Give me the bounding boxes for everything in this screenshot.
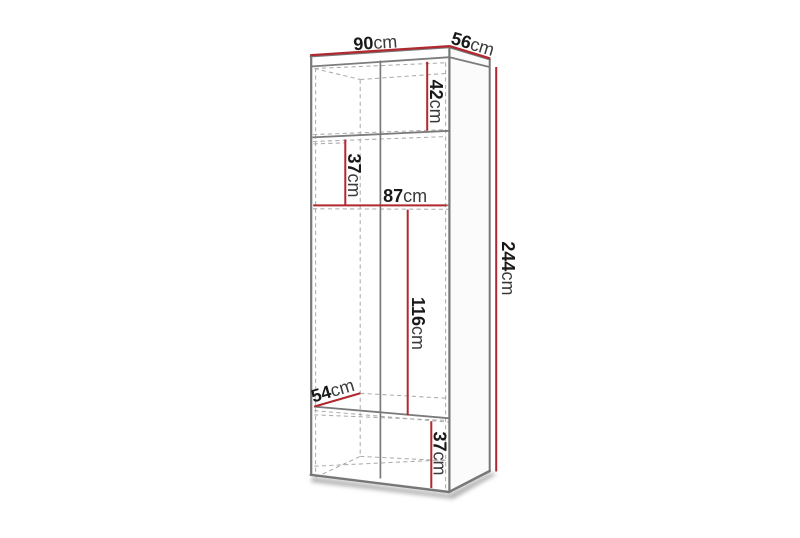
svg-text:37cm: 37cm — [429, 432, 449, 476]
svg-text:116cm: 116cm — [408, 297, 428, 350]
svg-text:90cm: 90cm — [353, 31, 398, 54]
svg-text:87cm: 87cm — [383, 186, 427, 206]
svg-text:244cm: 244cm — [498, 241, 518, 295]
svg-text:42cm: 42cm — [426, 80, 446, 124]
svg-text:37cm: 37cm — [344, 154, 364, 198]
